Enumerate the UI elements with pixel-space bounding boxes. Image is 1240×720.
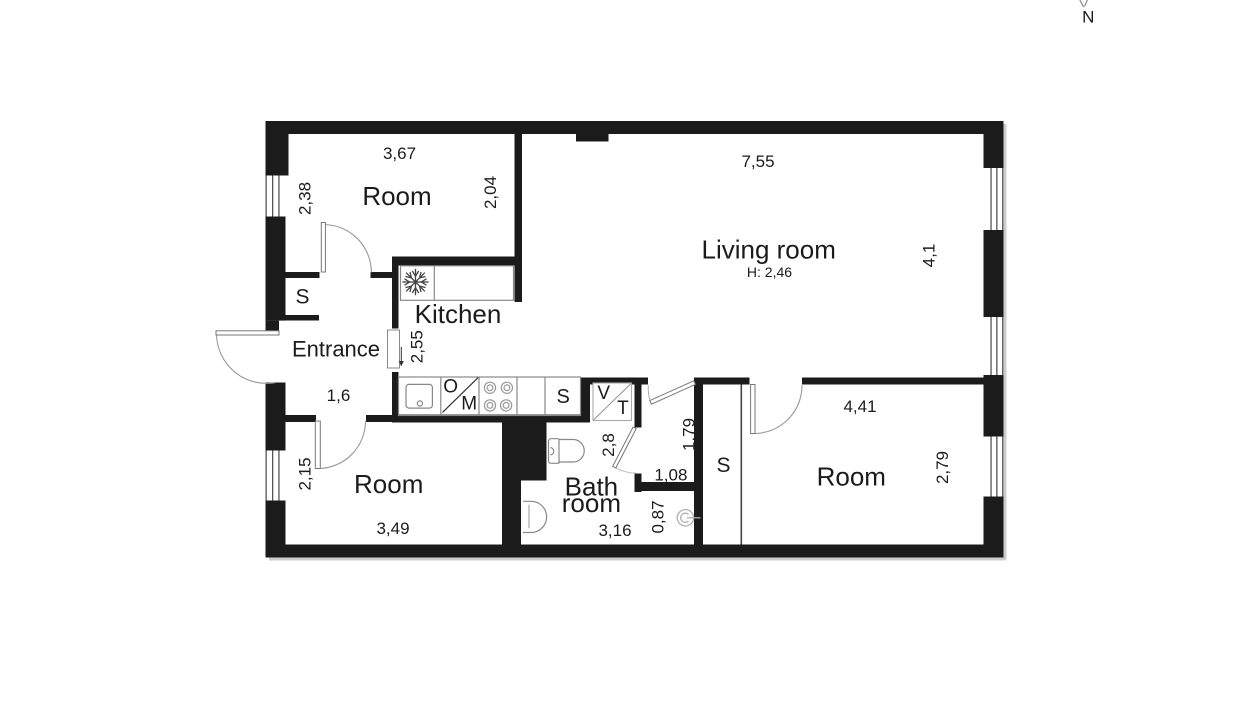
svg-text:1,79: 1,79 <box>680 418 699 451</box>
svg-text:2,79: 2,79 <box>933 451 952 484</box>
svg-text:room: room <box>562 488 621 518</box>
svg-text:O: O <box>443 377 458 398</box>
svg-text:1,08: 1,08 <box>654 466 687 485</box>
svg-text:T: T <box>617 398 629 419</box>
svg-text:2,8: 2,8 <box>599 433 618 457</box>
svg-text:Room: Room <box>362 181 431 211</box>
svg-text:0,87: 0,87 <box>649 500 668 533</box>
svg-text:S: S <box>716 454 730 477</box>
svg-text:2,15: 2,15 <box>296 457 315 490</box>
svg-text:H: 2,46: H: 2,46 <box>747 264 792 280</box>
svg-text:Room: Room <box>817 461 886 491</box>
svg-text:7,55: 7,55 <box>741 152 774 171</box>
svg-text:Room: Room <box>354 469 423 499</box>
svg-text:1,6: 1,6 <box>327 386 351 405</box>
svg-text:Living room: Living room <box>701 235 835 265</box>
svg-text:4,41: 4,41 <box>843 397 876 416</box>
svg-text:M: M <box>461 393 477 414</box>
svg-text:S: S <box>557 386 570 408</box>
svg-text:Kitchen: Kitchen <box>415 299 502 329</box>
svg-text:3,67: 3,67 <box>383 144 416 163</box>
svg-text:3,16: 3,16 <box>598 521 631 540</box>
svg-text:3,49: 3,49 <box>376 519 409 538</box>
svg-text:S: S <box>295 286 309 309</box>
svg-text:V: V <box>597 383 610 404</box>
svg-text:2,55: 2,55 <box>408 330 427 363</box>
svg-text:Entrance: Entrance <box>292 336 380 361</box>
svg-text:N: N <box>1082 8 1094 27</box>
svg-text:2,04: 2,04 <box>481 176 500 209</box>
svg-text:4,1: 4,1 <box>920 244 939 268</box>
svg-text:2,38: 2,38 <box>296 182 315 215</box>
